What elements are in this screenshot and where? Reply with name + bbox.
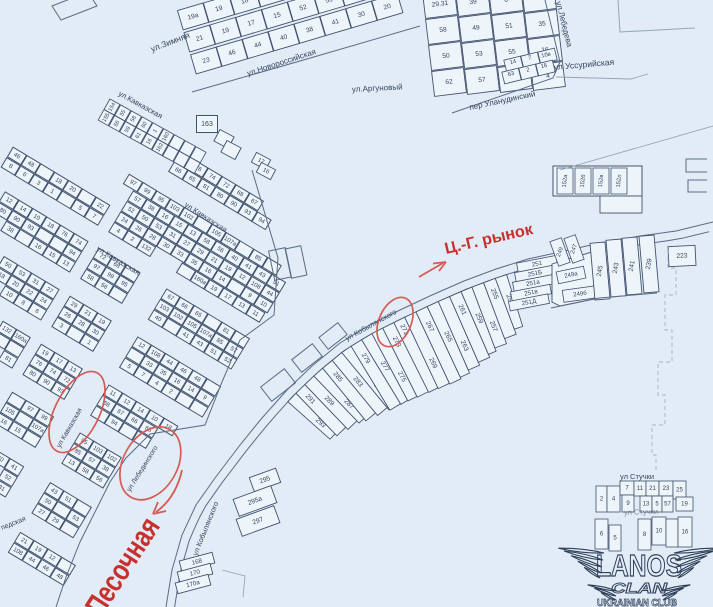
svg-text:10: 10 (656, 529, 663, 535)
svg-text:50: 50 (442, 52, 450, 60)
svg-text:16: 16 (682, 530, 689, 536)
svg-text:223: 223 (676, 252, 688, 260)
svg-text:163: 163 (201, 121, 213, 128)
svg-text:23: 23 (663, 486, 670, 492)
svg-text:57: 57 (478, 76, 486, 84)
svg-text:UKRAINIAN CLUB: UKRAINIAN CLUB (597, 597, 677, 607)
svg-text:51: 51 (505, 22, 513, 30)
svg-text:53: 53 (475, 50, 483, 58)
svg-text:CLAN: CLAN (611, 580, 669, 597)
svg-text:35: 35 (538, 20, 546, 28)
svg-text:LANOS: LANOS (596, 548, 682, 583)
svg-text:19: 19 (681, 502, 688, 508)
svg-text:39: 39 (469, 0, 477, 6)
svg-text:58: 58 (439, 26, 447, 34)
svg-text:11: 11 (637, 486, 644, 492)
svg-text:57: 57 (664, 502, 671, 508)
svg-text:21: 21 (649, 486, 656, 492)
svg-text:ул Стучки: ул Стучки (620, 472, 654, 481)
svg-text:62: 62 (445, 78, 453, 86)
svg-text:55: 55 (508, 48, 516, 56)
svg-text:ул Стучки: ул Стучки (624, 507, 658, 517)
svg-text:6: 6 (504, 0, 509, 4)
svg-text:49: 49 (472, 24, 480, 32)
svg-text:25: 25 (676, 488, 683, 494)
